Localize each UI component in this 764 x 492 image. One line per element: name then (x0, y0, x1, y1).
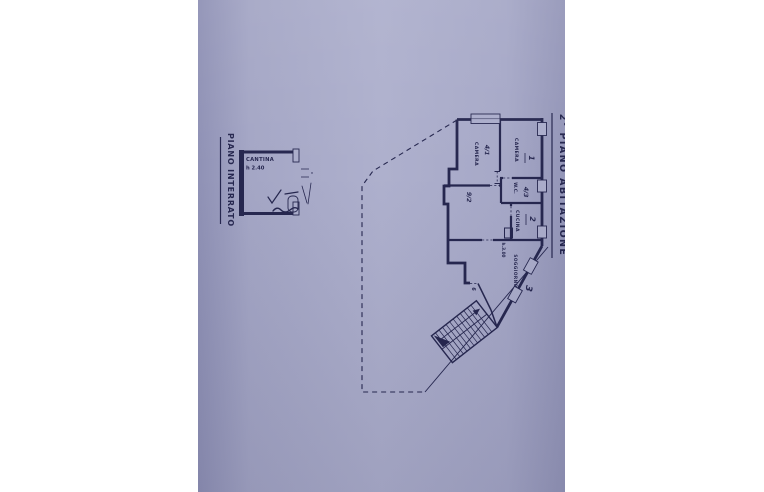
code-disimpegno: 9/2 (465, 192, 473, 203)
stair-direction-arrow (439, 313, 474, 341)
staircase (431, 301, 497, 363)
label-camera-right: CAMERA (513, 138, 519, 162)
title-piano-abitazione: 2° PIANO ABITAZIONE (552, 113, 565, 258)
label-soggiorno-height: h.3.00 (501, 243, 506, 258)
stair-arrowhead (473, 306, 482, 315)
dimension-ticks (301, 169, 309, 177)
entry-walls (478, 284, 497, 328)
cantina-room: CANTINA h 2.40 (239, 149, 313, 216)
svg-text:PIANO INTERRATO: PIANO INTERRATO (226, 133, 235, 227)
label-soggiorno: SOGGIORNO (513, 254, 518, 287)
floorplan-drawing: CANTINA h 2.40 PIANO INTERRATO 2° PIANO … (198, 0, 565, 492)
label-wc: W.C. (512, 182, 518, 194)
scanned-document: CANTINA h 2.40 PIANO INTERRATO 2° PIANO … (198, 0, 565, 492)
cantina-height-label: h 2.40 (246, 166, 265, 172)
title-piano-interrato: PIANO INTERRATO (221, 133, 236, 227)
code-camera-left: 4/1 (483, 145, 491, 156)
svg-text:2° PIANO ABITAZIONE: 2° PIANO ABITAZIONE (557, 114, 565, 257)
cantina-label: CANTINA (246, 157, 274, 163)
label-camera-left: CAMERA (473, 142, 479, 166)
windows (471, 114, 547, 303)
exterior-walls (444, 118, 542, 327)
unit-soggiorno: 3 (523, 284, 534, 292)
code-wc: 4/3 (522, 187, 530, 198)
unit-cucina: 2 (528, 216, 537, 222)
label-cucina: CUCINA (514, 210, 520, 232)
code-ingresso: 6 (470, 287, 476, 291)
interior-walls (444, 120, 542, 240)
photo-page: { "plan": { "titles": { "floor_below": "… (0, 0, 764, 492)
unit-camera-right: 1 (527, 155, 536, 161)
handwritten-scribbles (268, 183, 311, 212)
